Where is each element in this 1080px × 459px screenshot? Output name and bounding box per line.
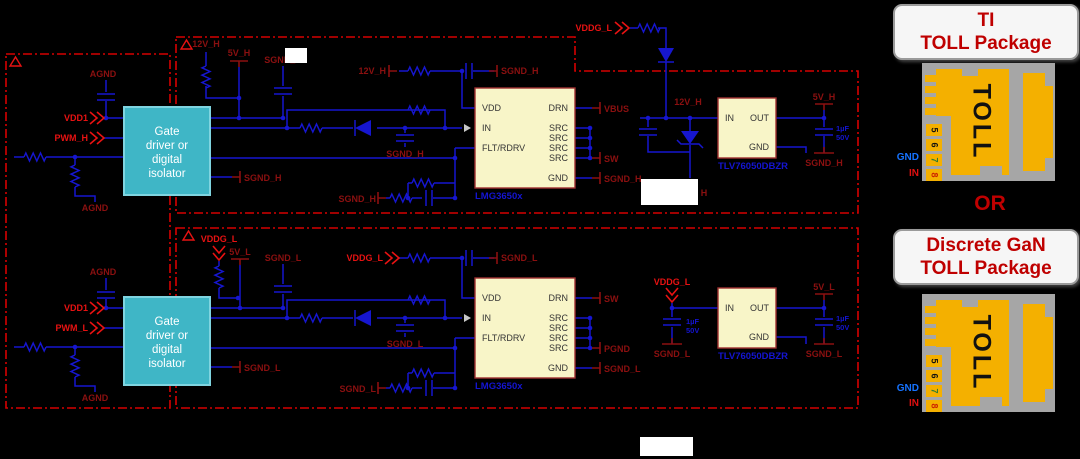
pin-label: FLT/RDRV bbox=[482, 143, 525, 153]
net-label: 1µF bbox=[686, 317, 699, 326]
net-label: AGND bbox=[82, 393, 109, 403]
pin-number: 5 bbox=[930, 358, 940, 363]
net-label: SGND_L bbox=[501, 253, 538, 263]
net-label: SGND_L bbox=[654, 349, 691, 359]
pin-label: OUT bbox=[750, 303, 770, 313]
net-label: SW bbox=[604, 294, 619, 304]
ldo-part-number: TLV76050DBZR bbox=[718, 351, 788, 362]
net-label: PWM_L bbox=[56, 323, 89, 333]
pin-label: GND bbox=[548, 363, 569, 373]
net-label: SW bbox=[604, 154, 619, 164]
pin-number: 6 bbox=[930, 142, 940, 147]
net-label: SGND_H bbox=[386, 149, 424, 159]
net-label: AGND bbox=[90, 267, 117, 277]
net-label: 5V_H bbox=[813, 92, 836, 102]
net-label: 12V_H bbox=[358, 66, 386, 76]
pin-label: DRN bbox=[549, 293, 569, 303]
net-label: AGND bbox=[82, 203, 109, 213]
net-label: PGND bbox=[604, 344, 631, 354]
net-label: SGND_L bbox=[387, 339, 424, 349]
pin-label: SRC bbox=[549, 153, 569, 163]
net-label: 5V_H bbox=[228, 48, 251, 58]
net-label: VDDG_L bbox=[575, 23, 612, 33]
gate-driver-text: isolator bbox=[148, 358, 185, 370]
ldo-part-number: TLV76050DBZR bbox=[718, 161, 788, 172]
net-label: SGND_H bbox=[604, 174, 642, 184]
gnd-pin-callout-bottom: GND bbox=[893, 383, 919, 394]
net-label: SGND_L bbox=[244, 363, 281, 373]
net-label: 5V_L bbox=[229, 247, 251, 257]
pin-label: FLT/RDRV bbox=[482, 333, 525, 343]
pin-label: SRC bbox=[549, 333, 569, 343]
gate-driver-text: isolator bbox=[148, 168, 185, 180]
discrete-gan-card: Discrete GaN TOLL Package bbox=[893, 229, 1079, 285]
pin-label: IN bbox=[482, 123, 491, 133]
pin-label: IN bbox=[482, 313, 491, 323]
gate-driver-text: driver or bbox=[146, 330, 188, 342]
pin-label: SRC bbox=[549, 343, 569, 353]
net-label: VDDG_L bbox=[346, 253, 383, 263]
pin-label: IN bbox=[725, 113, 734, 123]
in-pin-callout-bottom: IN bbox=[893, 398, 919, 409]
net-label: SGND_L bbox=[265, 253, 302, 263]
toll-package-top-image: TOLL5678 bbox=[922, 63, 1055, 181]
pin-label: VDD bbox=[482, 293, 502, 303]
half-bridge-gan-schematic: VDDINFLT/RDRVDRNSRCSRCSRCSRCGNDLMG3650xV… bbox=[0, 0, 1080, 459]
pin-number: 8 bbox=[930, 403, 940, 408]
pin-number: 7 bbox=[930, 157, 940, 162]
pin-label: DRN bbox=[549, 103, 569, 113]
gate-driver-text: driver or bbox=[146, 140, 188, 152]
toll-marking: TOLL bbox=[967, 84, 995, 161]
in-pin-callout-top: IN bbox=[893, 168, 919, 179]
pin-label: IN bbox=[725, 303, 734, 313]
net-label: 50V bbox=[836, 323, 849, 332]
net-label: SGND_H bbox=[805, 158, 843, 168]
pin-label: GND bbox=[548, 173, 569, 183]
pin-number: 6 bbox=[930, 373, 940, 378]
net-label: VBUS bbox=[604, 104, 629, 114]
net-label: SGND_H bbox=[501, 66, 539, 76]
gate-driver-text: digital bbox=[152, 344, 182, 356]
ti-toll-card: TI TOLL Package bbox=[893, 4, 1079, 60]
net-label: VDD1 bbox=[64, 113, 88, 123]
discrete-gan-card-line2: TOLL Package bbox=[895, 257, 1077, 280]
toll-marking: TOLL bbox=[967, 315, 995, 392]
net-label: VDDG_L bbox=[201, 234, 238, 244]
net-label: SGND_L bbox=[806, 349, 843, 359]
net-label: SGND_H bbox=[338, 194, 376, 204]
ti-toll-card-line2: TOLL Package bbox=[895, 32, 1077, 55]
pin-label: SRC bbox=[549, 143, 569, 153]
net-label: H bbox=[701, 188, 708, 198]
net-label: 12V_H bbox=[674, 97, 702, 107]
net-label: 12V_H bbox=[192, 39, 220, 49]
net-label: 1µF bbox=[836, 124, 849, 133]
pin-label: VDD bbox=[482, 103, 502, 113]
net-label: 50V bbox=[686, 326, 699, 335]
pin-label: SRC bbox=[549, 133, 569, 143]
gate-driver-text: Gate bbox=[155, 126, 180, 138]
gate-driver-text: Gate bbox=[155, 316, 180, 328]
pin-label: GND bbox=[749, 332, 770, 342]
net-label: PWM_H bbox=[55, 133, 89, 143]
discrete-gan-card-line1: Discrete GaN bbox=[895, 234, 1077, 257]
net-label: SGND_H bbox=[244, 173, 282, 183]
pin-label: OUT bbox=[750, 113, 770, 123]
pin-number: 5 bbox=[930, 127, 940, 132]
net-label: 50V bbox=[836, 133, 849, 142]
gate-driver-text: digital bbox=[152, 154, 182, 166]
net-label: SGND_L bbox=[339, 384, 376, 394]
gan-fet-part-number: LMG3650x bbox=[475, 191, 523, 202]
ti-toll-card-line1: TI bbox=[895, 9, 1077, 32]
or-label: OR bbox=[955, 192, 1025, 216]
gnd-pin-callout-top: GND bbox=[893, 152, 919, 163]
net-label: VDD1 bbox=[64, 303, 88, 313]
pin-label: SRC bbox=[549, 123, 569, 133]
toll-package-bottom-image: TOLL5678 bbox=[922, 294, 1055, 412]
pin-number: 8 bbox=[930, 172, 940, 177]
gan-fet-part-number: LMG3650x bbox=[475, 381, 523, 392]
net-label: VDDG_L bbox=[654, 277, 691, 287]
net-label: 5V_L bbox=[813, 282, 835, 292]
pin-number: 7 bbox=[930, 388, 940, 393]
pin-label: SRC bbox=[549, 313, 569, 323]
pin-label: GND bbox=[749, 142, 770, 152]
net-label: 1µF bbox=[836, 314, 849, 323]
pin-label: SRC bbox=[549, 323, 569, 333]
net-label: SGND_L bbox=[604, 364, 641, 374]
net-label: AGND bbox=[90, 69, 117, 79]
